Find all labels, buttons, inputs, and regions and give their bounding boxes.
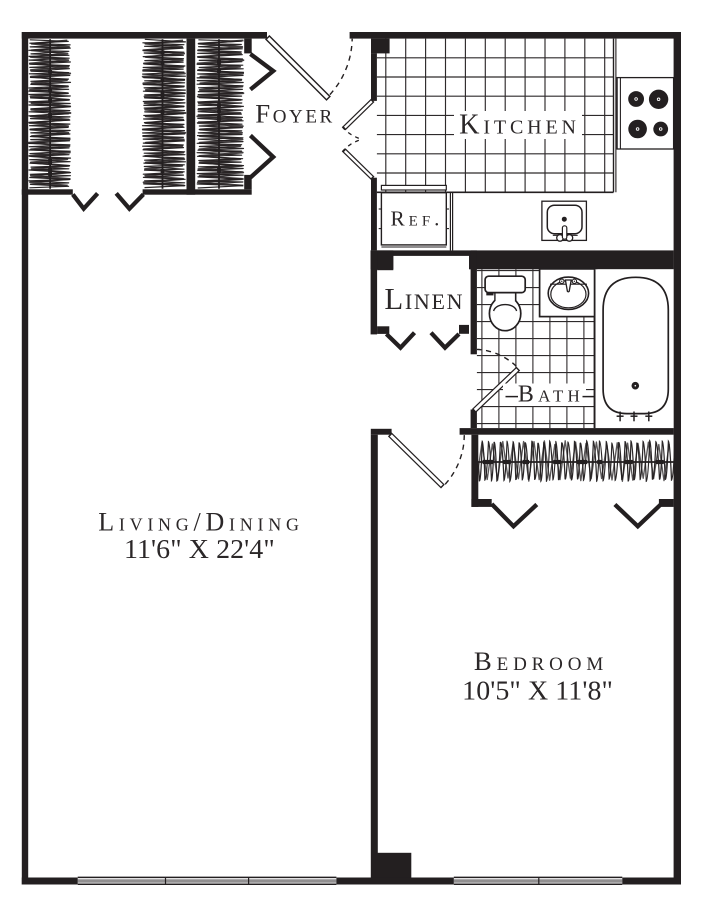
svg-text:Bedroom: Bedroom [474, 646, 608, 676]
svg-text:Kitchen: Kitchen [459, 110, 580, 141]
svg-text:Foyer: Foyer [255, 99, 335, 129]
svg-text:Living/Dining: Living/Dining [98, 508, 304, 537]
svg-text:Bath: Bath [518, 382, 584, 408]
svg-text:Ref.: Ref. [391, 207, 444, 231]
svg-text:Linen: Linen [384, 282, 464, 316]
svg-text:11'6" X 22'4": 11'6" X 22'4" [124, 534, 275, 565]
svg-text:10'5" X 11'8": 10'5" X 11'8" [462, 676, 613, 707]
